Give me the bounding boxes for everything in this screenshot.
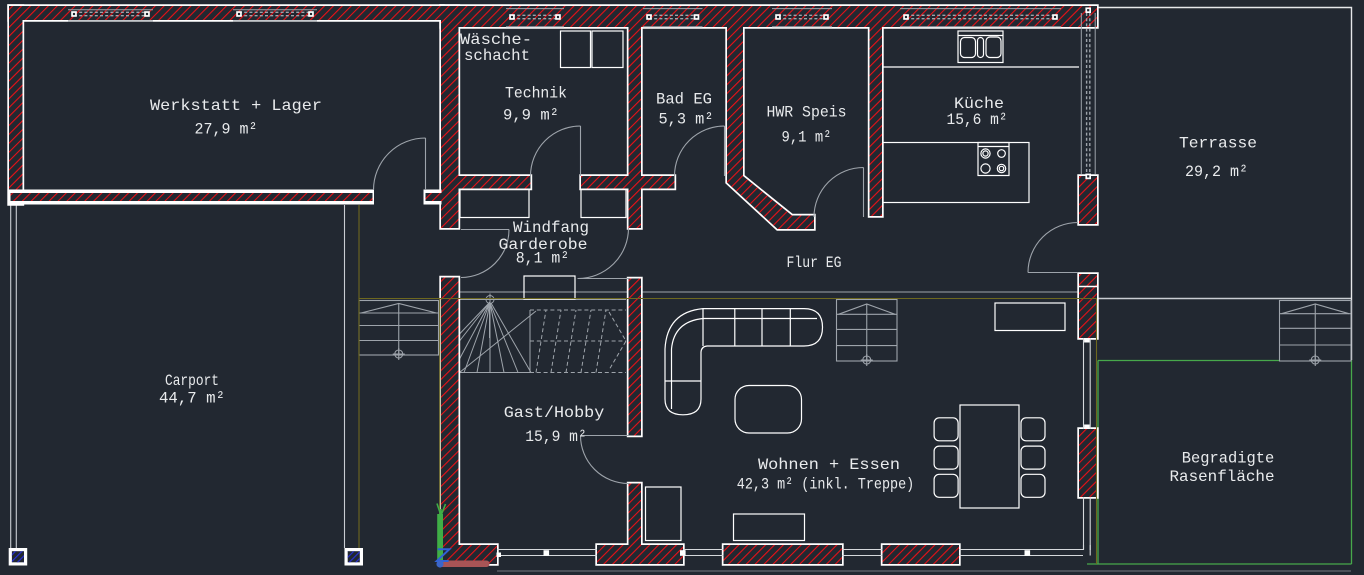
svg-text:Technik: Technik <box>505 85 567 103</box>
svg-text:42,3 m² (inkl. Treppe): 42,3 m² (inkl. Treppe) <box>737 476 915 494</box>
svg-text:Flur EG: Flur EG <box>787 254 842 272</box>
svg-text:9,9 m²: 9,9 m² <box>503 107 559 125</box>
svg-text:Gast/Hobby: Gast/Hobby <box>504 404 605 422</box>
svg-text:Carport: Carport <box>165 372 219 390</box>
svg-text:HWR Speis: HWR Speis <box>767 104 847 122</box>
svg-text:9,1 m²: 9,1 m² <box>782 129 832 147</box>
svg-text:15,6 m²: 15,6 m² <box>947 111 1008 129</box>
svg-text:8,1 m²: 8,1 m² <box>516 250 570 268</box>
svg-text:15,9 m²: 15,9 m² <box>525 428 587 446</box>
svg-text:44,7 m²: 44,7 m² <box>159 390 225 408</box>
svg-text:Bad EG: Bad EG <box>656 91 712 109</box>
svg-text:29,2 m²: 29,2 m² <box>1185 163 1248 181</box>
svg-text:Werkstatt + Lager: Werkstatt + Lager <box>150 97 322 115</box>
svg-text:Terrasse: Terrasse <box>1179 135 1257 153</box>
svg-text:Rasenfläche: Rasenfläche <box>1170 468 1275 486</box>
svg-text:Windfang: Windfang <box>513 219 589 237</box>
svg-text:Wohnen + Essen: Wohnen + Essen <box>758 456 900 474</box>
svg-text:Begradigte: Begradigte <box>1182 450 1275 468</box>
svg-text:schacht: schacht <box>464 47 530 65</box>
svg-text:27,9 m²: 27,9 m² <box>195 121 258 139</box>
svg-text:5,3 m²: 5,3 m² <box>659 111 714 129</box>
